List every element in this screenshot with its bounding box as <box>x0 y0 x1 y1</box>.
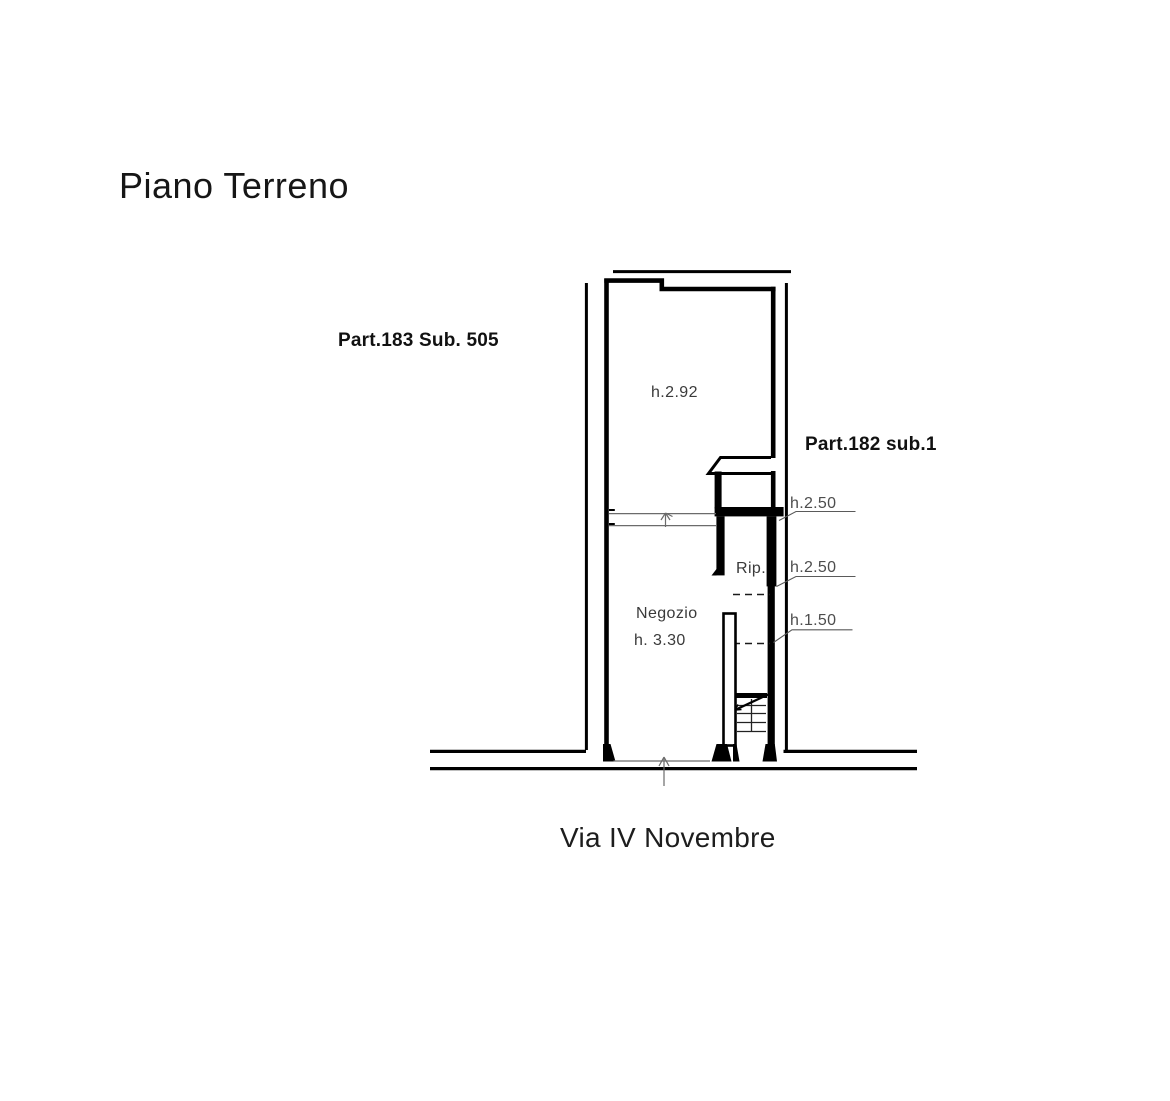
entrance-left-jamb <box>603 744 616 762</box>
floor-title: Piano Terreno <box>119 165 349 206</box>
parcel-label-left: Part.183 Sub. 505 <box>338 330 499 351</box>
street-name-label: Via IV Novembre <box>560 822 776 853</box>
street-lines <box>430 751 917 768</box>
parcel-label-right: Part.182 sub.1 <box>805 434 937 455</box>
upper-room-height-label: h.2.92 <box>651 384 698 401</box>
floorplan-page: Piano Terreno Via IV Novembre Part.183 S… <box>0 0 1170 1101</box>
shop-height-label: h. 3.30 <box>634 632 686 649</box>
openings <box>609 513 716 786</box>
floorplan-drawing: Piano Terreno Via IV Novembre Part.183 S… <box>0 0 1170 1101</box>
leader-height-top <box>779 512 856 521</box>
passage-jamb-ticks <box>609 510 615 524</box>
stair-door-left-jamb <box>733 744 740 762</box>
closet-right-wall <box>767 516 777 586</box>
wall-right-lower <box>768 586 775 746</box>
height-annotation-top: h.2.50 <box>790 495 836 512</box>
wall-under-flue <box>715 472 722 509</box>
height-annotation-low: h.1.50 <box>790 612 836 629</box>
height-annotation-mid: h.2.50 <box>790 559 836 576</box>
closet-door-jamb <box>712 569 717 576</box>
flue-protrusion <box>709 458 772 474</box>
wall-top-stepped <box>604 281 775 289</box>
leader-height-mid <box>777 577 856 587</box>
closet-left-wall <box>716 516 724 575</box>
closet-label: Rip. <box>736 560 766 577</box>
unit-walls <box>603 279 776 762</box>
stairwell-left-wall <box>724 614 736 746</box>
stairwell <box>712 614 778 762</box>
closet-top-wall <box>715 507 784 516</box>
stair-door-right-jamb <box>763 744 778 762</box>
shop-label: Negozio <box>636 605 698 622</box>
passage-arrow <box>661 513 673 527</box>
